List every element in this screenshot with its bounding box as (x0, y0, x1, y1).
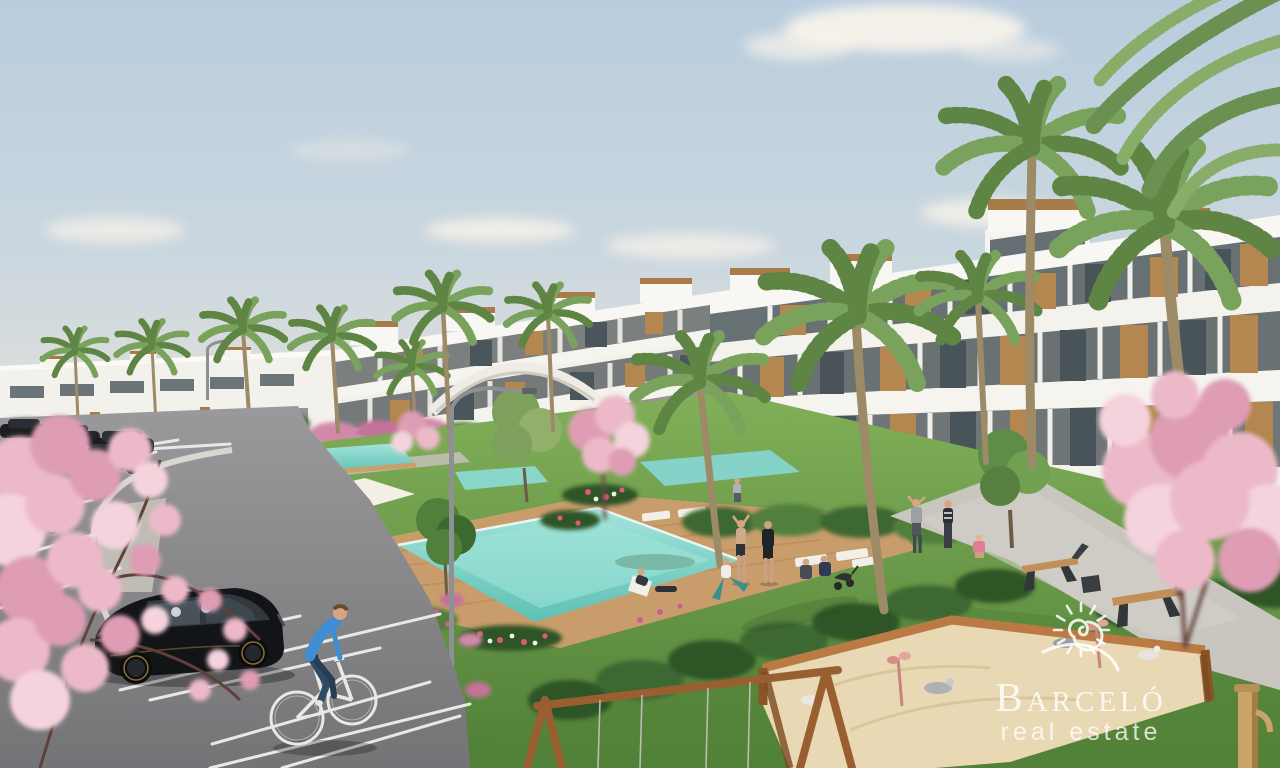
pool-walker (733, 478, 741, 502)
person-lying (655, 586, 677, 592)
bench-small (1081, 575, 1101, 593)
scene-illustration (0, 0, 1280, 768)
render-image: Barceló real estate (0, 0, 1280, 768)
